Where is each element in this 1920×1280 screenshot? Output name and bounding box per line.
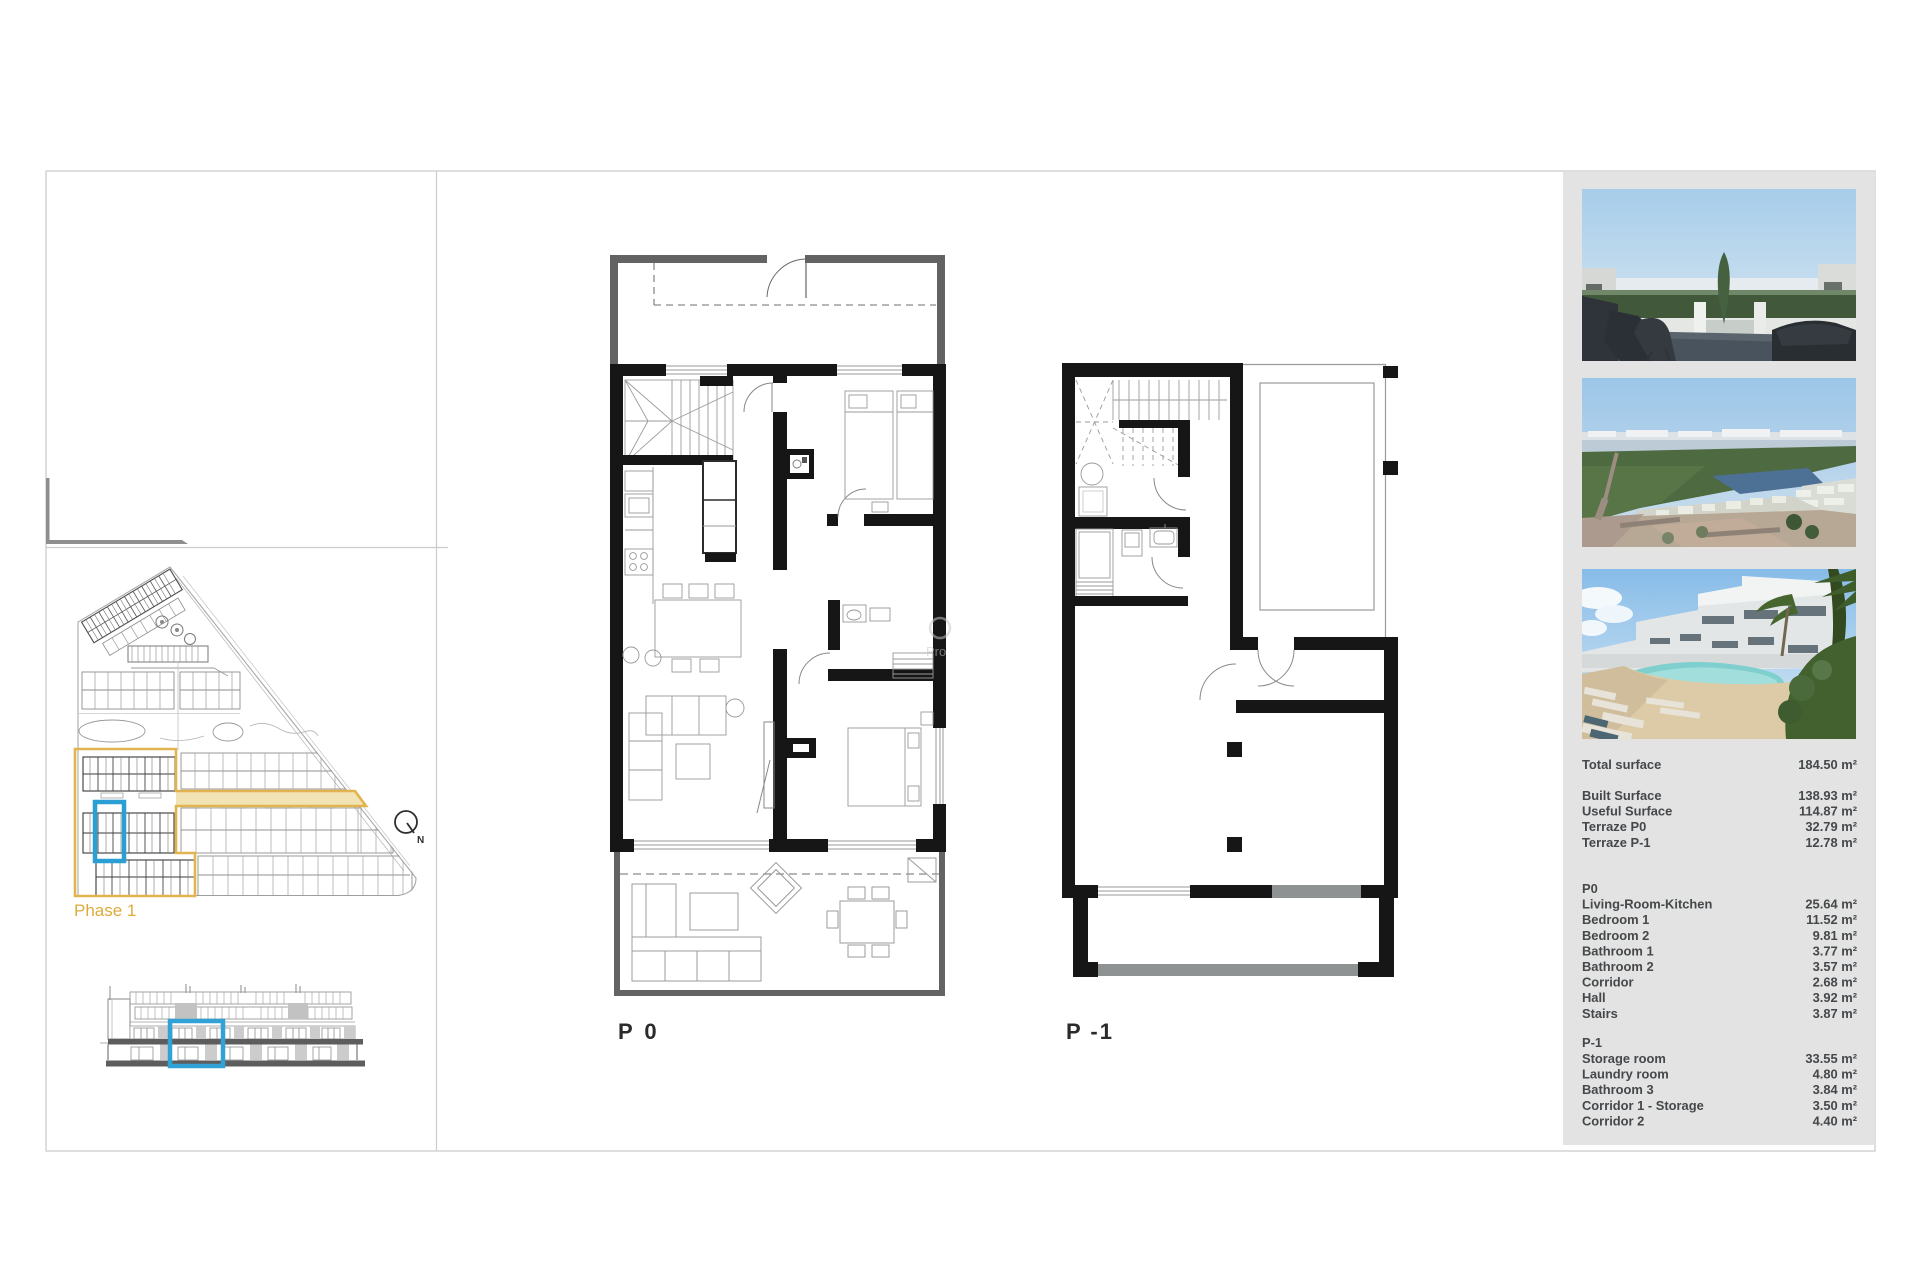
svg-text:Phase 1: Phase 1 — [74, 901, 136, 920]
svg-text:Stairs: Stairs — [1582, 1006, 1618, 1021]
svg-text:Storage room: Storage room — [1582, 1051, 1666, 1066]
svg-text:P0: P0 — [1582, 881, 1598, 896]
svg-text:P 0: P 0 — [618, 1019, 660, 1044]
svg-text:138.93 m²: 138.93 m² — [1798, 788, 1857, 803]
svg-text:9.81 m²: 9.81 m² — [1813, 928, 1858, 943]
svg-text:Laundry room: Laundry room — [1582, 1067, 1669, 1082]
svg-text:4.40 m²: 4.40 m² — [1813, 1113, 1858, 1128]
svg-text:32.79 m²: 32.79 m² — [1805, 819, 1857, 834]
svg-text:P-1: P-1 — [1582, 1035, 1602, 1050]
svg-text:Bathroom 3: Bathroom 3 — [1582, 1082, 1654, 1097]
svg-text:184.50 m²: 184.50 m² — [1798, 757, 1857, 772]
svg-text:Terraze P0: Terraze P0 — [1582, 819, 1646, 834]
svg-text:Bedroom 2: Bedroom 2 — [1582, 928, 1649, 943]
svg-text:4.80 m²: 4.80 m² — [1813, 1067, 1858, 1082]
svg-text:3.77 m²: 3.77 m² — [1813, 943, 1858, 958]
svg-text:Hall: Hall — [1582, 990, 1606, 1005]
svg-text:Useful Surface: Useful Surface — [1582, 804, 1672, 819]
svg-text:Bathroom 2: Bathroom 2 — [1582, 959, 1654, 974]
svg-text:25.64 m²: 25.64 m² — [1805, 897, 1857, 912]
svg-text:Built Surface: Built Surface — [1582, 788, 1662, 803]
svg-text:114.87 m²: 114.87 m² — [1799, 804, 1858, 819]
svg-text:3.92 m²: 3.92 m² — [1813, 990, 1858, 1005]
svg-text:Corridor 2: Corridor 2 — [1582, 1113, 1644, 1128]
svg-text:33.55 m²: 33.55 m² — [1805, 1051, 1857, 1066]
svg-text:12.78 m²: 12.78 m² — [1805, 835, 1857, 850]
svg-text:Total surface: Total surface — [1582, 757, 1661, 772]
svg-text:Corridor 1 - Storage: Corridor 1 - Storage — [1582, 1098, 1704, 1113]
svg-text:3.84 m²: 3.84 m² — [1813, 1082, 1858, 1097]
svg-text:3.57 m²: 3.57 m² — [1813, 959, 1858, 974]
svg-text:Terraze P-1: Terraze P-1 — [1582, 835, 1651, 850]
svg-text:Bathroom 1: Bathroom 1 — [1582, 943, 1654, 958]
svg-text:11.52 m²: 11.52 m² — [1806, 912, 1858, 927]
svg-text:3.87 m²: 3.87 m² — [1813, 1006, 1858, 1021]
svg-text:P -1: P -1 — [1066, 1019, 1114, 1044]
svg-text:Pro: Pro — [926, 644, 946, 659]
svg-text:Bedroom 1: Bedroom 1 — [1582, 912, 1649, 927]
svg-text:2.68 m²: 2.68 m² — [1813, 975, 1858, 990]
svg-text:Living-Room-Kitchen: Living-Room-Kitchen — [1582, 897, 1712, 912]
svg-text:3.50 m²: 3.50 m² — [1813, 1098, 1858, 1113]
svg-text:Corridor: Corridor — [1582, 975, 1634, 990]
svg-text:N: N — [417, 835, 424, 846]
